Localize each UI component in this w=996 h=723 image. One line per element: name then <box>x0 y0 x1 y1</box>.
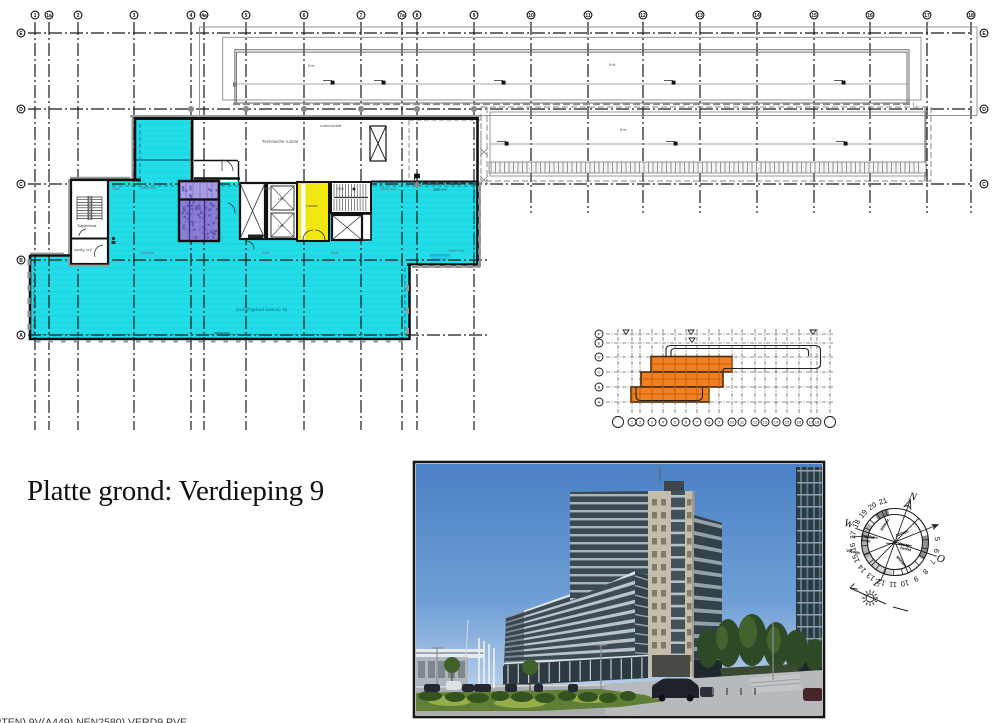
svg-text:2500: 2500 <box>262 187 270 191</box>
svg-text:3: 3 <box>133 13 136 19</box>
svg-text:nood g. vrij: nood g. vrij <box>74 248 92 252</box>
svg-text:17: 17 <box>924 13 930 19</box>
svg-text:15: 15 <box>811 13 817 19</box>
svg-text:B: B <box>598 385 601 390</box>
svg-text:E: E <box>598 341 601 346</box>
svg-text:15: 15 <box>785 420 790 425</box>
svg-text:10: 10 <box>528 13 534 19</box>
svg-text:2500: 2500 <box>112 187 120 191</box>
svg-text:6: 6 <box>303 13 306 19</box>
svg-text:0+k: 0+k <box>620 127 627 132</box>
svg-text:A: A <box>598 400 601 405</box>
svg-text:1: 1 <box>34 13 37 19</box>
svg-text:Lunchr.: Lunchr. <box>306 204 318 208</box>
svg-text:aaaaaaaa: aaaaaaaa <box>214 331 230 335</box>
svg-text:RTEN) 9V(A449) NEN2580) VERD9: RTEN) 9V(A449) NEN2580) VERD9 PVE <box>0 717 187 723</box>
svg-text:ggg gggg: ggg gggg <box>432 257 447 261</box>
svg-text:10: 10 <box>730 420 735 425</box>
svg-text:D: D <box>19 107 23 113</box>
svg-text:380 m²: 380 m² <box>433 187 448 192</box>
svg-text:5: 5 <box>933 537 942 542</box>
svg-text:13: 13 <box>697 13 703 19</box>
svg-text:18: 18 <box>815 420 820 425</box>
svg-text:5: 5 <box>245 13 248 19</box>
svg-text:0+k: 0+k <box>308 63 315 68</box>
svg-text:1a: 1a <box>46 13 52 19</box>
svg-text:0+k: 0+k <box>609 62 616 67</box>
svg-text:16: 16 <box>797 420 802 425</box>
svg-text:8: 8 <box>416 13 419 19</box>
svg-text:7a: 7a <box>399 13 405 19</box>
svg-text:11: 11 <box>585 13 591 19</box>
svg-text:2500mm: 2500mm <box>140 251 154 255</box>
svg-text:14: 14 <box>774 420 779 425</box>
svg-text:Trappenhuis: Trappenhuis <box>77 224 97 228</box>
svg-text:4a: 4a <box>201 13 207 19</box>
svg-text:12: 12 <box>640 13 646 19</box>
svg-text:12: 12 <box>753 420 758 425</box>
svg-text:16: 16 <box>867 13 873 19</box>
svg-text:11: 11 <box>889 580 897 589</box>
svg-text:2500+mm: 2500+mm <box>448 249 464 253</box>
svg-text:2500+mm: 2500+mm <box>380 187 396 191</box>
svg-text:17: 17 <box>848 530 858 540</box>
svg-text:Platte grond: Verdieping 9: Platte grond: Verdieping 9 <box>27 475 324 507</box>
svg-text:250b: 250b <box>262 251 270 255</box>
svg-text:C: C <box>598 370 601 375</box>
svg-text:7: 7 <box>360 13 363 19</box>
svg-text:D: D <box>598 355 601 360</box>
svg-text:D: D <box>982 107 986 113</box>
svg-text:Lift: Lift <box>278 224 283 228</box>
svg-text:9: 9 <box>473 13 476 19</box>
svg-text:18: 18 <box>968 13 974 19</box>
svg-text:a-aanvoerldat: a-aanvoerldat <box>320 124 341 128</box>
svg-text:14: 14 <box>754 13 760 19</box>
svg-text:2: 2 <box>77 13 80 19</box>
svg-text:Technische ruimte: Technische ruimte <box>262 139 299 144</box>
svg-text:250b: 250b <box>330 251 338 255</box>
svg-text:C: C <box>982 182 986 188</box>
svg-text:4: 4 <box>190 13 193 19</box>
svg-text:C: C <box>19 182 23 188</box>
svg-text:13: 13 <box>763 420 768 425</box>
svg-text:2500: 2500 <box>336 187 344 191</box>
svg-text:(verblijfsgebied kantoor) vrij: (verblijfsgebied kantoor) vrij <box>236 307 287 312</box>
svg-text:B: B <box>19 258 23 264</box>
svg-text:Lift: Lift <box>278 197 283 201</box>
svg-text:2500+mm: 2500+mm <box>140 186 156 190</box>
svg-text:A: A <box>19 333 23 339</box>
